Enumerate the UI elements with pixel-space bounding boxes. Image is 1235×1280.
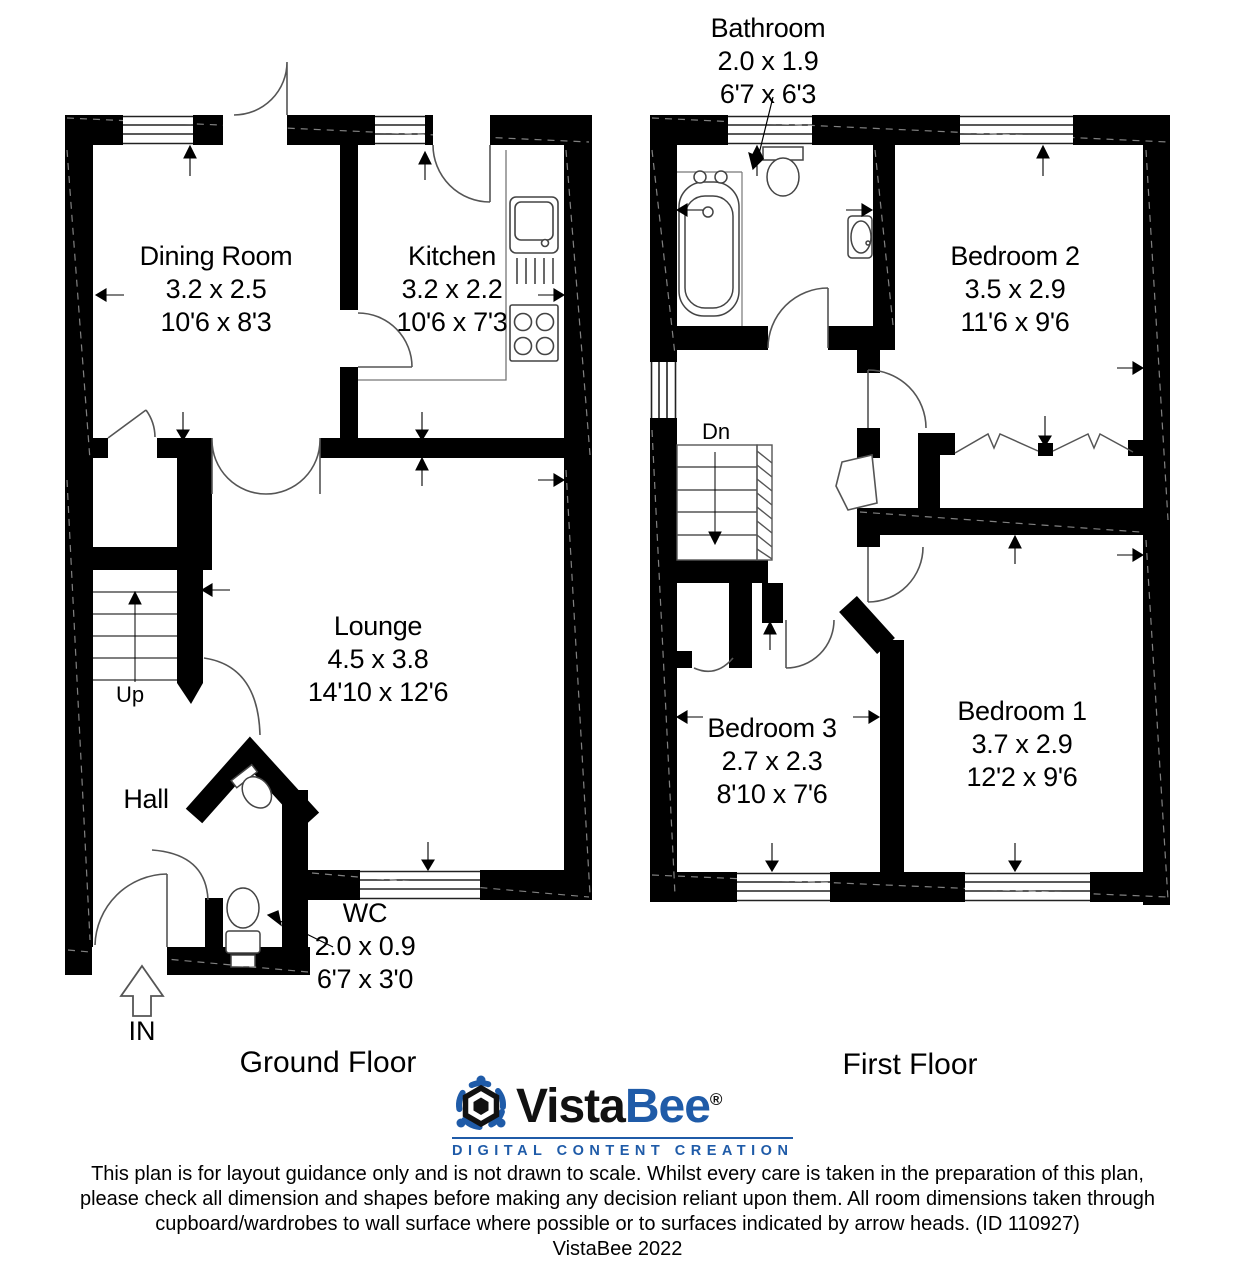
logo-tagline: DIGITAL CONTENT CREATION — [452, 1137, 793, 1159]
stairs-up-label: Up — [116, 684, 144, 706]
entrance-in-label: IN — [129, 1018, 156, 1045]
bath-icon — [677, 171, 742, 326]
bedroom-2-label: Bedroom 2 3.5 x 2.9 11'6 x 9'6 — [950, 240, 1079, 339]
toilet-icon-first — [763, 147, 803, 196]
registered-mark: ® — [710, 1090, 723, 1109]
first-floor-caption: First Floor — [843, 1048, 978, 1082]
lounge-label: Lounge 4.5 x 3.8 14'10 x 12'6 — [308, 610, 448, 709]
disclaimer-line-1: This plan is for layout guidance only an… — [0, 1162, 1235, 1187]
disclaimer-text: This plan is for layout guidance only an… — [0, 1162, 1235, 1262]
ground-floor-caption: Ground Floor — [240, 1046, 417, 1080]
floorplan-page: Bathroom 2.0 x 1.9 6'7 x 6'3 Dining Room… — [0, 0, 1235, 1280]
stairs-down-label: Dn — [702, 421, 730, 443]
bedroom-1-label: Bedroom 1 3.7 x 2.9 12'2 x 9'6 — [957, 695, 1086, 794]
ground-floor-plan — [65, 62, 592, 1016]
cupboard-door-icon — [836, 455, 877, 510]
wc-label: WC 2.0 x 0.9 6'7 x 3'0 — [315, 897, 416, 996]
toilet-icon-ground — [226, 888, 260, 967]
sink-icon — [510, 197, 558, 284]
window-icons-ground — [123, 117, 480, 899]
vistabee-hexagon-icon — [452, 1074, 510, 1134]
disclaimer-line-4: VistaBee 2022 — [0, 1237, 1235, 1262]
dining-room-label: Dining Room 3.2 x 2.5 10'6 x 8'3 — [140, 240, 293, 339]
stairs-up-icon — [93, 592, 177, 682]
hall-label: Hall — [123, 783, 168, 816]
stairs-down-icon — [677, 445, 772, 560]
kitchen-label: Kitchen 3.2 x 2.2 10'6 x 7'3 — [397, 240, 508, 339]
disclaimer-line-2: please check all dimension and shapes be… — [0, 1187, 1235, 1212]
vistabee-wordmark: VistaBee® — [516, 1072, 722, 1135]
vistabee-logo: VistaBee® DIGITAL CONTENT CREATION — [452, 1072, 793, 1159]
hob-icon — [510, 305, 558, 361]
bedroom-3-label: Bedroom 3 2.7 x 2.3 8'10 x 7'6 — [707, 712, 836, 811]
basin-icon-first — [848, 216, 872, 258]
disclaimer-line-3: cupboard/wardrobes to wall surface where… — [0, 1212, 1235, 1237]
bathroom-label: Bathroom 2.0 x 1.9 6'7 x 6'3 — [711, 12, 826, 111]
